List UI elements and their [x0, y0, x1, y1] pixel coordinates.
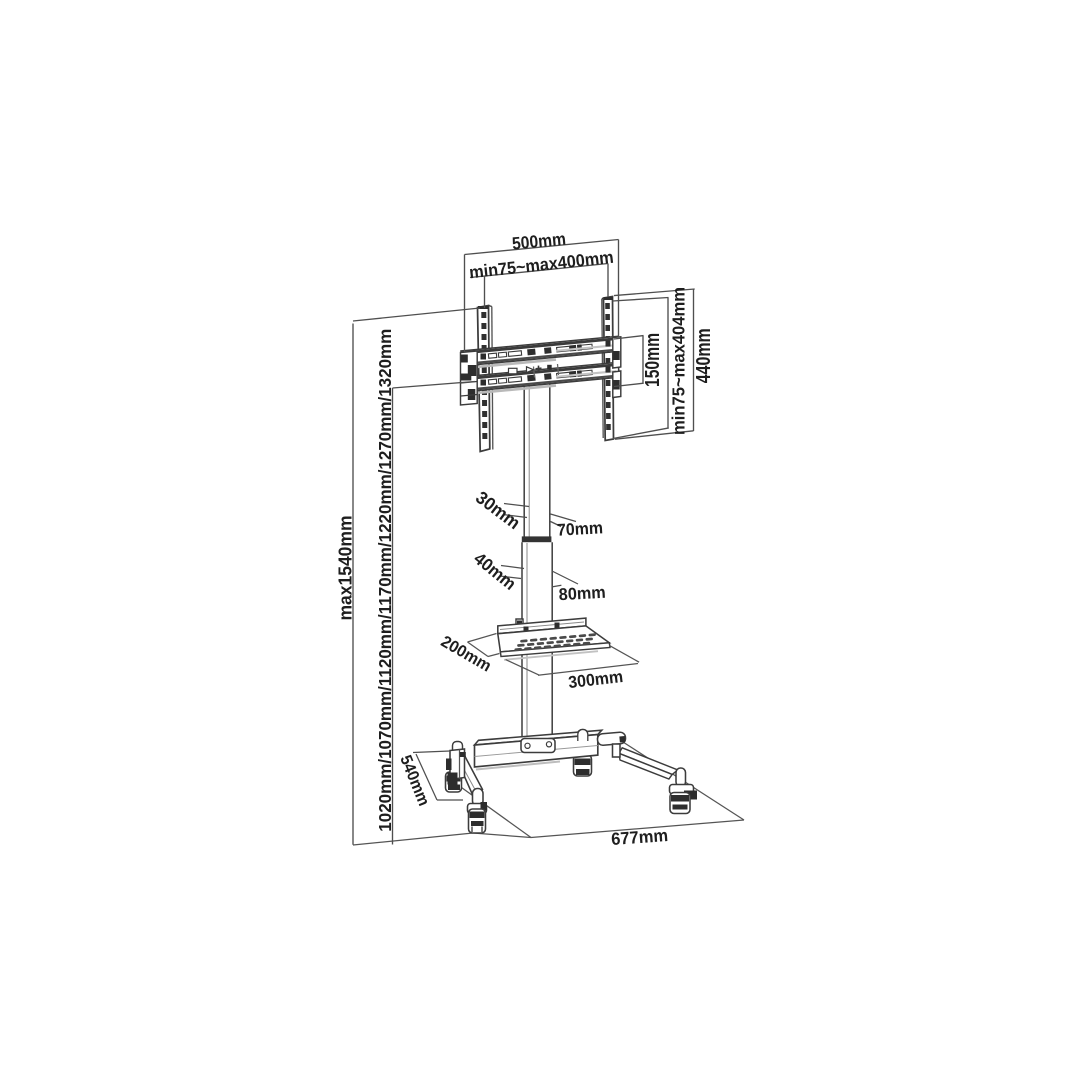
svg-text:200mm: 200mm [438, 633, 495, 676]
svg-text:500mm: 500mm [511, 229, 567, 254]
svg-text:70mm: 70mm [557, 518, 604, 539]
svg-text:540mm: 540mm [396, 753, 433, 809]
svg-text:150mm: 150mm [642, 333, 664, 387]
svg-text:30mm: 30mm [472, 487, 524, 533]
svg-text:677mm: 677mm [610, 825, 668, 849]
svg-text:min75~max404mm: min75~max404mm [669, 287, 689, 435]
svg-text:40mm: 40mm [470, 548, 520, 594]
svg-text:440mm: 440mm [693, 328, 715, 383]
svg-text:max1540mm: max1540mm [335, 516, 356, 621]
svg-text:1020mm/1070mm/1120mm/1170mm/12: 1020mm/1070mm/1120mm/1170mm/1220mm/1270m… [375, 329, 395, 832]
svg-text:80mm: 80mm [558, 583, 606, 604]
